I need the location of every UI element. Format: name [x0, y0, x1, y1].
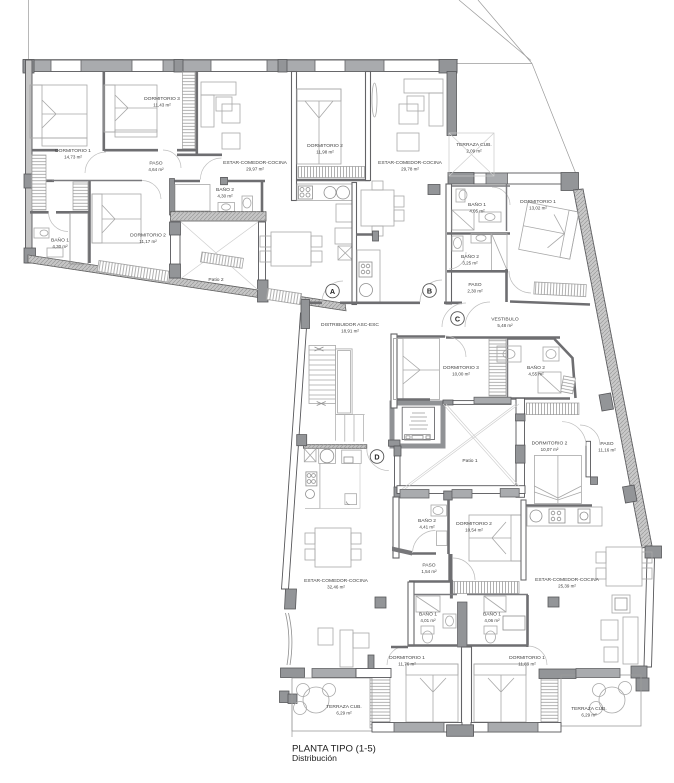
svg-text:2,30 m²: 2,30 m² — [467, 289, 483, 294]
svg-text:18,91 m²: 18,91 m² — [341, 329, 359, 334]
svg-text:DORMITORIO 1: DORMITORIO 1 — [509, 655, 545, 661]
svg-text:D: D — [374, 452, 379, 461]
svg-text:BAÑO 2: BAÑO 2 — [216, 186, 234, 193]
svg-text:PASO: PASO — [468, 282, 481, 288]
svg-text:11,16 m²: 11,16 m² — [598, 448, 616, 453]
svg-text:5,48 m²: 5,48 m² — [497, 323, 513, 328]
svg-text:TERRAZA CUB.: TERRAZA CUB. — [326, 704, 362, 710]
svg-text:BAÑO 2: BAÑO 2 — [461, 253, 479, 260]
svg-text:29,97 m²: 29,97 m² — [246, 167, 264, 172]
svg-text:DORMITORIO 2: DORMITORIO 2 — [130, 233, 166, 239]
svg-text:ESTAR-COMEDOR-COCINA: ESTAR-COMEDOR-COCINA — [304, 578, 368, 584]
svg-text:4,64 m²: 4,64 m² — [148, 167, 164, 172]
svg-text:ESTAR-COMEDOR-COCINA: ESTAR-COMEDOR-COCINA — [223, 160, 287, 166]
svg-text:4,55 m²: 4,55 m² — [528, 372, 544, 377]
svg-text:25,39 m²: 25,39 m² — [558, 584, 576, 589]
svg-text:32,46 m²: 32,46 m² — [327, 585, 345, 590]
svg-text:4,01 m²: 4,01 m² — [420, 618, 436, 623]
svg-text:DORMITORIO 2: DORMITORIO 2 — [307, 143, 343, 149]
svg-text:4,30 m²: 4,30 m² — [217, 194, 233, 199]
svg-text:PASO: PASO — [422, 563, 435, 569]
svg-text:2,09 m²: 2,09 m² — [466, 149, 482, 154]
svg-text:11,17 m²: 11,17 m² — [139, 239, 157, 244]
svg-text:4,30 m²: 4,30 m² — [52, 244, 68, 249]
svg-text:3,25 m²: 3,25 m² — [462, 261, 478, 266]
svg-text:10,54 m²: 10,54 m² — [465, 528, 483, 533]
svg-text:Distribución: Distribución — [292, 753, 337, 763]
svg-text:TERRAZA CUB.: TERRAZA CUB. — [456, 142, 492, 148]
svg-text:PASO: PASO — [149, 161, 162, 167]
svg-text:1,54 m²: 1,54 m² — [421, 569, 437, 574]
svg-text:DISTRIBUIDOR ASC-ESC: DISTRIBUIDOR ASC-ESC — [321, 322, 379, 328]
svg-text:DORMITORIO 1: DORMITORIO 1 — [389, 655, 425, 661]
svg-text:11,98 m²: 11,98 m² — [316, 150, 334, 155]
svg-text:10,07 m²: 10,07 m² — [541, 447, 559, 452]
svg-text:DORMITORIO 1: DORMITORIO 1 — [520, 199, 556, 205]
svg-text:VESTIBULO: VESTIBULO — [491, 317, 519, 323]
svg-text:DORMITORIO 2: DORMITORIO 2 — [456, 521, 492, 527]
svg-text:4,06 m²: 4,06 m² — [484, 618, 500, 623]
svg-text:ESTAR-COMEDOR-COCINA: ESTAR-COMEDOR-COCINA — [378, 160, 442, 166]
svg-text:BAÑO 2: BAÑO 2 — [527, 364, 545, 371]
svg-text:14,73 m²: 14,73 m² — [64, 155, 82, 160]
svg-text:6,29 m²: 6,29 m² — [336, 711, 352, 716]
svg-text:TERRAZA CUB.: TERRAZA CUB. — [571, 706, 607, 712]
svg-text:C: C — [455, 314, 460, 323]
svg-text:4,41 m²: 4,41 m² — [419, 525, 435, 530]
svg-text:DORMITORIO 3: DORMITORIO 3 — [443, 365, 479, 371]
svg-text:10,00 m²: 10,00 m² — [452, 372, 470, 377]
svg-text:A: A — [330, 287, 335, 296]
svg-text:DORMITORIO 3: DORMITORIO 3 — [144, 96, 180, 102]
svg-text:6,29 m²: 6,29 m² — [581, 713, 597, 718]
svg-text:11,76 m²: 11,76 m² — [398, 662, 416, 667]
svg-text:11,89 m²: 11,89 m² — [518, 662, 536, 667]
svg-text:PASO: PASO — [600, 441, 613, 447]
svg-text:ESTAR-COMEDOR-COCINA: ESTAR-COMEDOR-COCINA — [535, 577, 599, 583]
svg-text:29,78 m²: 29,78 m² — [401, 167, 419, 172]
svg-text:B: B — [427, 286, 432, 295]
svg-text:BAÑO 1: BAÑO 1 — [483, 611, 501, 618]
svg-text:Patio 2: Patio 2 — [208, 277, 224, 283]
svg-text:BAÑO 1: BAÑO 1 — [419, 611, 437, 618]
svg-text:DORMITORIO 2: DORMITORIO 2 — [532, 441, 568, 447]
svg-text:BAÑO 1: BAÑO 1 — [51, 237, 69, 244]
svg-text:DORMITORIO 1: DORMITORIO 1 — [55, 148, 91, 154]
svg-text:BAÑO 2: BAÑO 2 — [418, 517, 436, 524]
svg-text:11,43 m²: 11,43 m² — [153, 103, 171, 108]
svg-text:Patio 1: Patio 1 — [462, 458, 478, 464]
svg-text:13,02 m²: 13,02 m² — [529, 206, 547, 211]
svg-text:BAÑO 1: BAÑO 1 — [468, 201, 486, 208]
svg-text:4,05 m²: 4,05 m² — [469, 209, 485, 214]
